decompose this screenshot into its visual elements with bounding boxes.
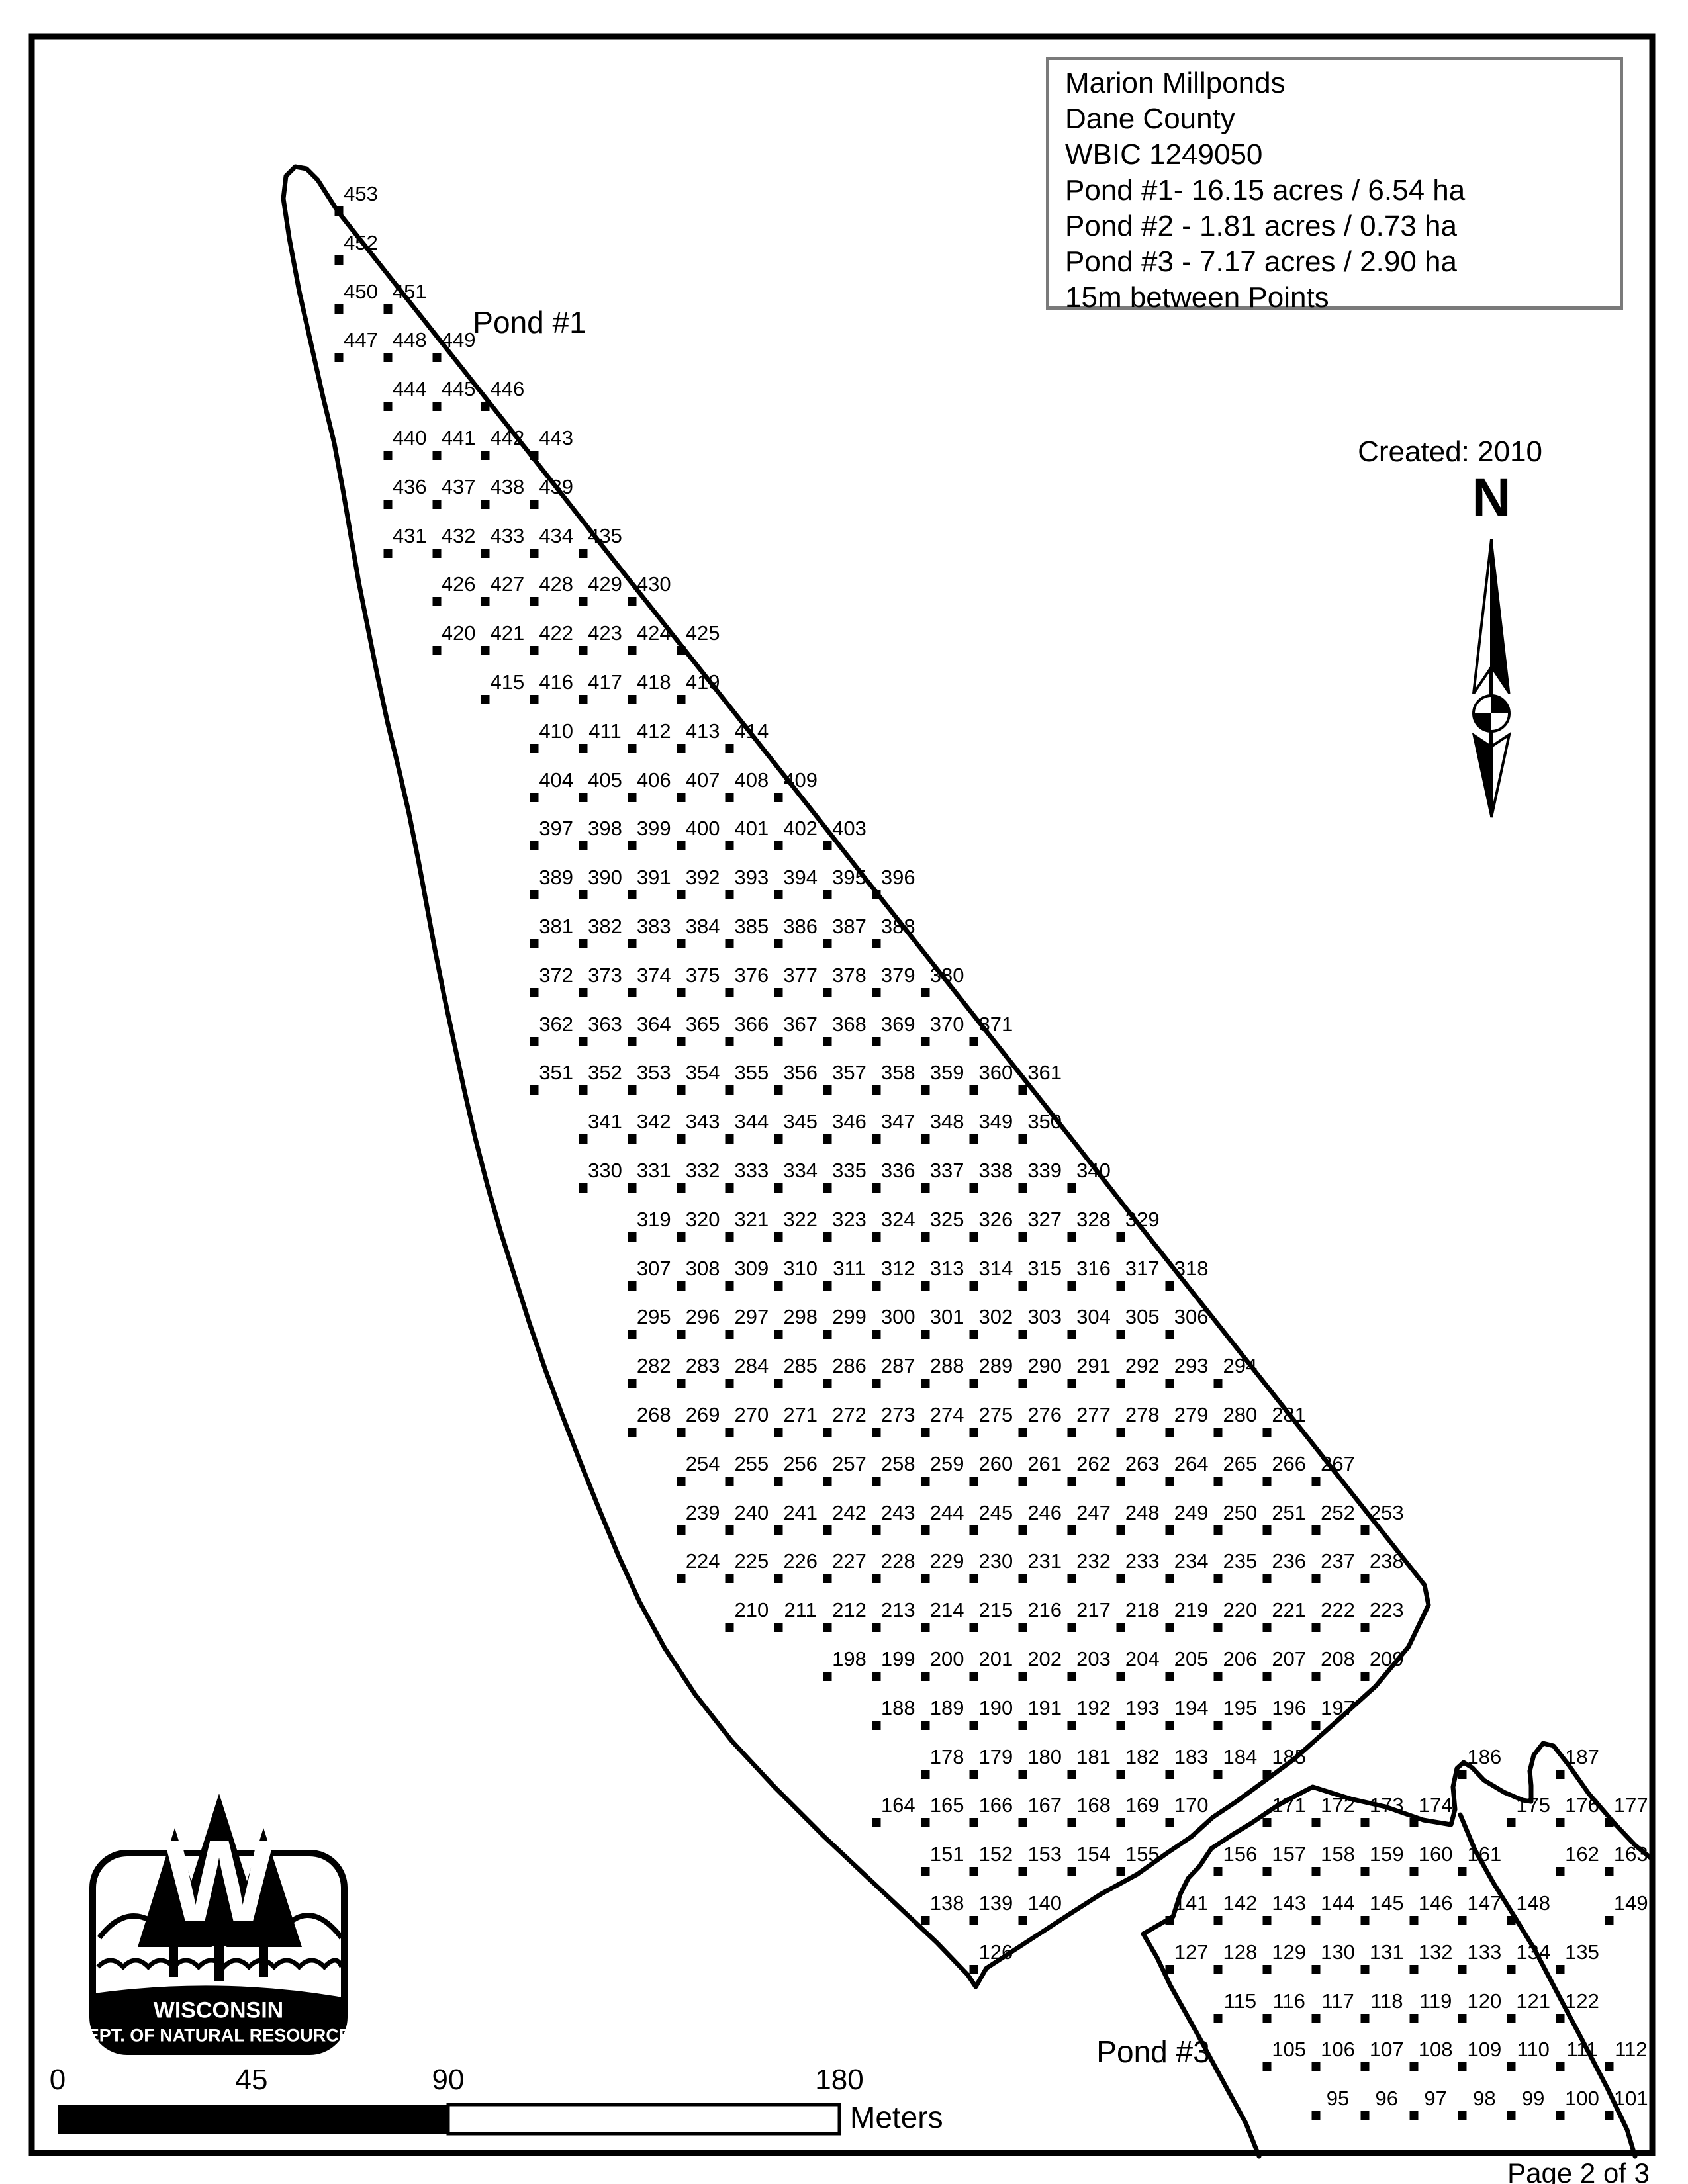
survey-point-label: 443 — [539, 426, 573, 450]
survey-point-label: 403 — [832, 817, 867, 841]
survey-point-label: 276 — [1027, 1403, 1062, 1427]
survey-point-marker — [726, 1232, 734, 1242]
survey-point-label: 446 — [491, 377, 525, 401]
survey-point-label: 310 — [783, 1257, 818, 1281]
survey-point-marker — [726, 1525, 734, 1535]
survey-point-marker — [1165, 1477, 1174, 1486]
survey-point-marker — [432, 402, 441, 411]
survey-point-marker — [726, 841, 734, 850]
survey-point-marker — [774, 890, 783, 899]
survey-point-marker — [970, 1037, 978, 1046]
survey-point-label: 444 — [393, 377, 427, 401]
survey-point-marker — [1214, 2014, 1223, 2023]
survey-point-label: 339 — [1027, 1159, 1062, 1183]
survey-point-label: 225 — [735, 1549, 769, 1573]
survey-point-label: 416 — [539, 670, 573, 694]
survey-point-label: 365 — [686, 1013, 720, 1036]
survey-point-label: 324 — [881, 1208, 915, 1232]
survey-point-label: 110 — [1517, 2038, 1549, 2062]
survey-point-label: 382 — [588, 915, 622, 938]
survey-point-marker — [530, 890, 539, 899]
survey-point-label: 321 — [735, 1208, 769, 1232]
survey-point-label: 289 — [979, 1354, 1013, 1378]
survey-point-label: 395 — [832, 866, 867, 889]
survey-point-marker — [1360, 1623, 1369, 1632]
survey-point-marker — [1312, 1672, 1321, 1681]
survey-point-marker — [677, 744, 685, 753]
survey-point-label: 385 — [735, 915, 769, 938]
survey-point-marker — [628, 744, 636, 753]
survey-point-marker — [970, 1574, 978, 1583]
survey-point-label: 237 — [1321, 1549, 1355, 1573]
survey-point-label: 317 — [1125, 1257, 1160, 1281]
survey-point-label: 320 — [686, 1208, 720, 1232]
survey-point-label: 318 — [1174, 1257, 1209, 1281]
survey-point-label: 418 — [637, 670, 671, 694]
survey-point-label: 129 — [1272, 1940, 1306, 1964]
survey-point-marker — [628, 841, 636, 850]
survey-point-marker — [1360, 1965, 1369, 1974]
survey-point-marker — [1263, 1574, 1272, 1583]
survey-point-marker — [1312, 2062, 1321, 2071]
survey-point-label: 447 — [344, 328, 378, 352]
survey-point-label: 214 — [930, 1598, 964, 1622]
survey-point-marker — [1263, 1477, 1272, 1486]
survey-point-marker — [823, 1574, 832, 1583]
pond3-label: Pond #3 — [1096, 2034, 1209, 2070]
survey-point-label: 406 — [637, 768, 671, 792]
survey-point-label: 146 — [1419, 1891, 1453, 1915]
north-arrow-icon — [1474, 539, 1509, 817]
survey-point-label: 411 — [588, 719, 621, 743]
survey-point-marker — [628, 1085, 636, 1095]
survey-point-marker — [383, 500, 392, 509]
survey-point-marker — [1507, 2062, 1516, 2071]
survey-point-marker — [726, 939, 734, 948]
survey-point-marker — [1214, 1525, 1223, 1535]
survey-point-marker — [726, 1281, 734, 1291]
survey-point-marker — [1214, 1770, 1223, 1779]
survey-point-label: 241 — [783, 1501, 818, 1525]
survey-point-marker — [823, 1134, 832, 1144]
survey-point-marker — [1458, 1916, 1467, 1925]
survey-point-label: 159 — [1370, 1843, 1404, 1866]
survey-point-marker — [1165, 1721, 1174, 1730]
survey-point-label: 309 — [735, 1257, 769, 1281]
survey-point-label: 370 — [930, 1013, 964, 1036]
survey-point-label: 196 — [1272, 1696, 1306, 1720]
survey-point-label: 156 — [1223, 1843, 1258, 1866]
page-number-label: Page 2 of 3 — [1507, 2158, 1650, 2184]
survey-point-marker — [1068, 1574, 1076, 1583]
survey-point-marker — [726, 890, 734, 899]
survey-point-label: 336 — [881, 1159, 915, 1183]
survey-point-marker — [628, 646, 636, 655]
survey-point-marker — [335, 304, 344, 314]
survey-point-marker — [628, 1379, 636, 1388]
survey-point-marker — [726, 1330, 734, 1339]
survey-point-marker — [726, 793, 734, 802]
survey-point-label: 272 — [832, 1403, 867, 1427]
survey-point-label: 109 — [1468, 2038, 1502, 2062]
survey-point-label: 442 — [491, 426, 525, 450]
survey-point-label: 332 — [686, 1159, 720, 1183]
survey-point-marker — [774, 1525, 783, 1535]
survey-point-label: 294 — [1223, 1354, 1258, 1378]
survey-point-label: 165 — [930, 1794, 964, 1817]
survey-point-marker — [383, 304, 392, 314]
survey-point-label: 432 — [442, 524, 476, 548]
survey-point-label: 429 — [588, 572, 622, 596]
survey-point-marker — [970, 1330, 978, 1339]
survey-point-label: 367 — [783, 1013, 818, 1036]
survey-point-marker — [1116, 1623, 1125, 1632]
survey-point-marker — [823, 1477, 832, 1486]
survey-point-marker — [921, 1428, 929, 1437]
survey-point-label: 304 — [1076, 1305, 1111, 1329]
survey-point-marker — [1263, 1672, 1272, 1681]
survey-point-marker — [774, 1085, 783, 1095]
survey-point-label: 328 — [1076, 1208, 1111, 1232]
survey-point-marker — [970, 1379, 978, 1388]
survey-point-label: 356 — [783, 1061, 818, 1085]
survey-point-label: 235 — [1223, 1549, 1258, 1573]
survey-point-label: 99 — [1522, 2087, 1544, 2111]
survey-point-marker — [1312, 2014, 1321, 2023]
survey-point-label: 441 — [442, 426, 476, 450]
survey-point-marker — [823, 1379, 832, 1388]
survey-point-marker — [872, 1477, 880, 1486]
survey-point-marker — [1312, 1477, 1321, 1486]
survey-point-marker — [481, 549, 490, 558]
survey-point-label: 359 — [930, 1061, 964, 1085]
survey-point-marker — [1165, 1281, 1174, 1291]
survey-point-label: 372 — [539, 964, 573, 987]
survey-point-label: 291 — [1076, 1354, 1111, 1378]
survey-point-marker — [1214, 1867, 1223, 1876]
survey-point-label: 420 — [442, 621, 476, 645]
survey-point-marker — [1019, 1330, 1027, 1339]
survey-point-marker — [432, 451, 441, 460]
survey-point-label: 118 — [1370, 1989, 1403, 2013]
survey-point-label: 381 — [539, 915, 573, 938]
survey-point-label: 210 — [735, 1598, 769, 1622]
survey-point-label: 97 — [1424, 2087, 1446, 2111]
survey-point-marker — [726, 1428, 734, 1437]
survey-point-marker — [1507, 1916, 1516, 1925]
survey-point-label: 331 — [637, 1159, 671, 1183]
survey-point-label: 200 — [930, 1647, 964, 1671]
survey-point-marker — [970, 1770, 978, 1779]
survey-point-marker — [872, 1525, 880, 1535]
survey-point-marker — [1068, 1818, 1076, 1827]
survey-point-label: 238 — [1370, 1549, 1404, 1573]
survey-point-marker — [677, 1183, 685, 1193]
survey-point-marker — [1409, 1916, 1418, 1925]
survey-point-marker — [1019, 1183, 1027, 1193]
survey-point-marker — [677, 793, 685, 802]
survey-point-marker — [823, 988, 832, 997]
info-pond1-area: Pond #1- 16.15 acres / 6.54 ha — [1065, 173, 1620, 208]
survey-point-label: 342 — [637, 1110, 671, 1134]
survey-point-label: 201 — [979, 1647, 1013, 1671]
survey-point-marker — [1068, 1525, 1076, 1535]
survey-point-label: 375 — [686, 964, 720, 987]
survey-point-label: 244 — [930, 1501, 964, 1525]
survey-point-marker — [481, 695, 490, 704]
survey-point-marker — [970, 1525, 978, 1535]
survey-point-label: 431 — [393, 524, 427, 548]
survey-point-marker — [628, 597, 636, 606]
survey-point-marker — [1116, 1721, 1125, 1730]
survey-point-label: 163 — [1614, 1843, 1648, 1866]
survey-point-marker — [823, 1672, 832, 1681]
survey-point-label: 251 — [1272, 1501, 1306, 1525]
survey-point-label: 448 — [393, 328, 427, 352]
info-county: Dane County — [1065, 101, 1620, 137]
survey-point-marker — [1556, 1965, 1565, 1974]
survey-point-label: 397 — [539, 817, 573, 841]
survey-point-marker — [579, 841, 588, 850]
survey-point-marker — [872, 1281, 880, 1291]
survey-point-label: 333 — [735, 1159, 769, 1183]
survey-point-label: 378 — [832, 964, 867, 987]
survey-point-marker — [579, 1037, 588, 1046]
survey-point-label: 132 — [1419, 1940, 1453, 1964]
survey-point-label: 362 — [539, 1013, 573, 1036]
info-pond2-area: Pond #2 - 1.81 acres / 0.73 ha — [1065, 208, 1620, 244]
survey-point-marker — [823, 1623, 832, 1632]
survey-point-label: 255 — [735, 1452, 769, 1476]
survey-point-marker — [1556, 1818, 1565, 1827]
survey-point-marker — [1507, 2014, 1516, 2023]
survey-point-label: 438 — [491, 475, 525, 499]
survey-point-marker — [1263, 1818, 1272, 1827]
survey-point-label: 140 — [1027, 1891, 1062, 1915]
survey-point-label: 207 — [1272, 1647, 1306, 1671]
survey-point-marker — [1312, 1965, 1321, 1974]
survey-point-label: 357 — [832, 1061, 867, 1085]
survey-point-marker — [1019, 1721, 1027, 1730]
survey-point-label: 170 — [1174, 1794, 1209, 1817]
survey-point-label: 258 — [881, 1452, 915, 1476]
survey-point-marker — [1116, 1330, 1125, 1339]
survey-point-label: 266 — [1272, 1452, 1306, 1476]
survey-point-label: 274 — [930, 1403, 964, 1427]
survey-point-marker — [970, 1623, 978, 1632]
survey-point-marker — [1068, 1232, 1076, 1242]
survey-point-label: 179 — [979, 1745, 1013, 1769]
survey-point-marker — [1263, 1916, 1272, 1925]
survey-point-label: 181 — [1076, 1745, 1111, 1769]
survey-point-marker — [970, 1477, 978, 1486]
survey-point-marker — [530, 841, 539, 850]
survey-point-label: 101 — [1614, 2087, 1648, 2111]
survey-point-marker — [872, 939, 880, 948]
survey-point-marker — [1214, 1477, 1223, 1486]
info-point-spacing: 15m between Points — [1065, 280, 1620, 316]
survey-point-marker — [628, 1183, 636, 1193]
survey-point-label: 326 — [979, 1208, 1013, 1232]
survey-point-marker — [1312, 1818, 1321, 1827]
survey-point-marker — [579, 939, 588, 948]
survey-point-marker — [921, 1330, 929, 1339]
info-box: Marion Millponds Dane County WBIC 124905… — [1046, 57, 1623, 310]
survey-point-marker — [1165, 1428, 1174, 1437]
survey-point-marker — [774, 1183, 783, 1193]
survey-point-label: 131 — [1370, 1940, 1404, 1964]
survey-point-label: 282 — [637, 1354, 671, 1378]
survey-point-marker — [383, 353, 392, 362]
survey-point-label: 116 — [1272, 1989, 1305, 2013]
survey-point-label: 176 — [1565, 1794, 1599, 1817]
scale-tick-label: 0 — [50, 2064, 66, 2097]
survey-point-marker — [921, 1916, 929, 1925]
survey-point-marker — [1116, 1574, 1125, 1583]
survey-point-label: 262 — [1076, 1452, 1111, 1476]
survey-point-marker — [1068, 1477, 1076, 1486]
survey-point-label: 158 — [1321, 1843, 1355, 1866]
survey-point-marker — [872, 1672, 880, 1681]
survey-point-marker — [335, 353, 344, 362]
survey-point-label: 368 — [832, 1013, 867, 1036]
survey-point-marker — [1068, 1428, 1076, 1437]
survey-point-marker — [579, 646, 588, 655]
survey-point-label: 323 — [832, 1208, 867, 1232]
survey-point-marker — [1165, 1330, 1174, 1339]
created-label: Created: 2010 — [1358, 435, 1542, 469]
survey-point-marker — [1019, 1623, 1027, 1632]
survey-point-label: 269 — [686, 1403, 720, 1427]
survey-point-label: 206 — [1223, 1647, 1258, 1671]
survey-point-label: 373 — [588, 964, 622, 987]
survey-point-label: 312 — [881, 1257, 915, 1281]
survey-point-marker — [970, 1183, 978, 1193]
survey-point-label: 452 — [344, 231, 378, 255]
survey-point-label: 175 — [1516, 1794, 1550, 1817]
survey-point-label: 449 — [442, 328, 476, 352]
survey-point-label: 410 — [539, 719, 573, 743]
survey-point-label: 155 — [1125, 1843, 1160, 1866]
survey-point-marker — [1409, 2014, 1418, 2023]
survey-point-label: 141 — [1174, 1891, 1209, 1915]
survey-point-marker — [1409, 1965, 1418, 1974]
survey-point-label: 230 — [979, 1549, 1013, 1573]
scale-tick-label: 180 — [815, 2064, 863, 2097]
survey-point-marker — [1019, 1428, 1027, 1437]
survey-point-marker — [823, 1232, 832, 1242]
survey-point-marker — [530, 695, 539, 704]
survey-point-label: 425 — [686, 621, 720, 645]
survey-point-marker — [1019, 1574, 1027, 1583]
survey-point-marker — [1409, 1867, 1418, 1876]
survey-point-marker — [1116, 1770, 1125, 1779]
north-letter: N — [1472, 467, 1511, 529]
survey-point-label: 384 — [686, 915, 720, 938]
survey-point-marker — [1116, 1672, 1125, 1681]
survey-point-marker — [970, 1085, 978, 1095]
survey-point-label: 203 — [1076, 1647, 1111, 1671]
survey-point-marker — [1068, 1183, 1076, 1193]
survey-point-label: 202 — [1027, 1647, 1062, 1671]
survey-point-label: 350 — [1027, 1110, 1062, 1134]
survey-point-label: 371 — [979, 1013, 1013, 1036]
survey-point-label: 186 — [1468, 1745, 1502, 1769]
survey-point-marker — [921, 1770, 929, 1779]
survey-point-label: 100 — [1565, 2087, 1599, 2111]
survey-point-marker — [921, 1867, 929, 1876]
survey-point-marker — [383, 451, 392, 460]
survey-point-label: 193 — [1125, 1696, 1160, 1720]
survey-point-label: 450 — [344, 280, 378, 304]
survey-point-label: 286 — [832, 1354, 867, 1378]
survey-point-marker — [383, 549, 392, 558]
survey-point-marker — [1019, 1134, 1027, 1144]
survey-point-label: 117 — [1321, 1989, 1354, 2013]
survey-point-marker — [530, 451, 539, 460]
survey-point-label: 453 — [344, 182, 378, 206]
survey-point-marker — [726, 1574, 734, 1583]
survey-point-label: 380 — [930, 964, 964, 987]
survey-point-marker — [1458, 1867, 1467, 1876]
survey-point-marker — [628, 988, 636, 997]
survey-point-label: 194 — [1174, 1696, 1209, 1720]
svg-text:W: W — [164, 1817, 273, 1946]
survey-point-marker — [1263, 1867, 1272, 1876]
survey-point-marker — [1019, 1477, 1027, 1486]
survey-point-label: 445 — [442, 377, 476, 401]
survey-point-marker — [1263, 2062, 1272, 2071]
survey-point-label: 275 — [979, 1403, 1013, 1427]
survey-point-marker — [335, 255, 344, 265]
survey-point-label: 316 — [1076, 1257, 1111, 1281]
survey-point-label: 402 — [783, 817, 818, 841]
survey-point-marker — [579, 793, 588, 802]
survey-point-marker — [921, 1672, 929, 1681]
survey-point-marker — [1263, 1623, 1272, 1632]
survey-point-label: 399 — [637, 817, 671, 841]
survey-point-label: 263 — [1125, 1452, 1160, 1476]
survey-point-label: 96 — [1376, 2087, 1398, 2111]
survey-point-label: 127 — [1174, 1940, 1209, 1964]
survey-point-marker — [872, 1037, 880, 1046]
survey-point-label: 265 — [1223, 1452, 1258, 1476]
survey-point-label: 347 — [881, 1110, 915, 1134]
survey-point-marker — [1409, 2062, 1418, 2071]
survey-point-marker — [774, 1623, 783, 1632]
survey-point-marker — [921, 1085, 929, 1095]
survey-point-marker — [823, 1525, 832, 1535]
survey-point-marker — [1214, 1672, 1223, 1681]
survey-point-marker — [1068, 1330, 1076, 1339]
survey-point-marker — [1214, 1428, 1223, 1437]
survey-point-marker — [726, 1183, 734, 1193]
survey-point-marker — [628, 1281, 636, 1291]
survey-point-label: 287 — [881, 1354, 915, 1378]
survey-point-label: 221 — [1272, 1598, 1306, 1622]
survey-point-marker — [1214, 1574, 1223, 1583]
survey-point-marker — [530, 500, 539, 509]
survey-point-label: 396 — [881, 866, 915, 889]
survey-point-marker — [1312, 1574, 1321, 1583]
survey-point-marker — [1263, 1965, 1272, 1974]
scale-bar — [58, 2105, 839, 2134]
survey-point-label: 119 — [1419, 1989, 1452, 2013]
survey-point-label: 412 — [637, 719, 671, 743]
survey-point-marker — [1263, 1770, 1272, 1779]
survey-point-label: 284 — [735, 1354, 769, 1378]
survey-point-marker — [1116, 1477, 1125, 1486]
